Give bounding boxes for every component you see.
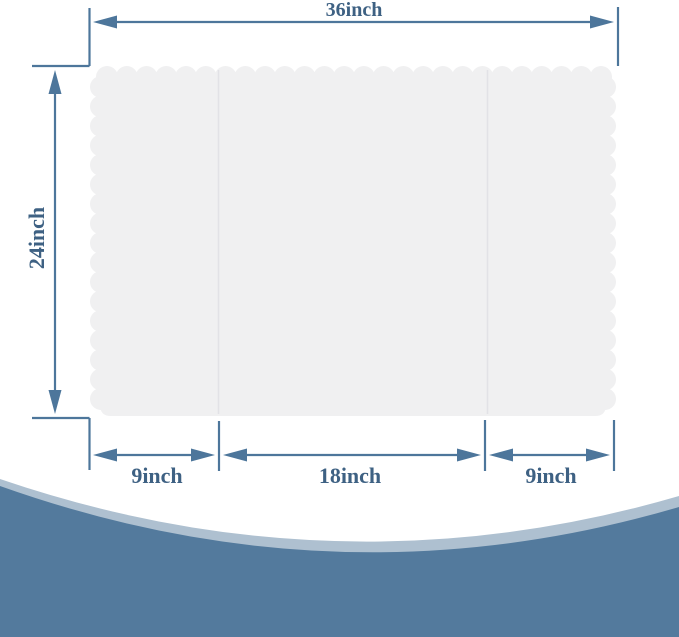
diagram-canvas bbox=[0, 0, 679, 637]
trifold-board bbox=[90, 66, 616, 416]
dim-label-panel-right: 9inch bbox=[525, 464, 576, 488]
dim-label-panel-left: 9inch bbox=[131, 464, 182, 488]
board-body bbox=[100, 77, 606, 416]
wave-background bbox=[0, 479, 679, 637]
dim-label-panel-center: 18inch bbox=[319, 464, 381, 488]
dimension-diagram: 36inch 24inch 9inch 18inch 9inch bbox=[0, 0, 679, 637]
dim-label-total-width: 36inch bbox=[326, 0, 383, 22]
wave-dark-area bbox=[0, 486, 679, 637]
dim-label-height: 24inch bbox=[25, 207, 49, 269]
